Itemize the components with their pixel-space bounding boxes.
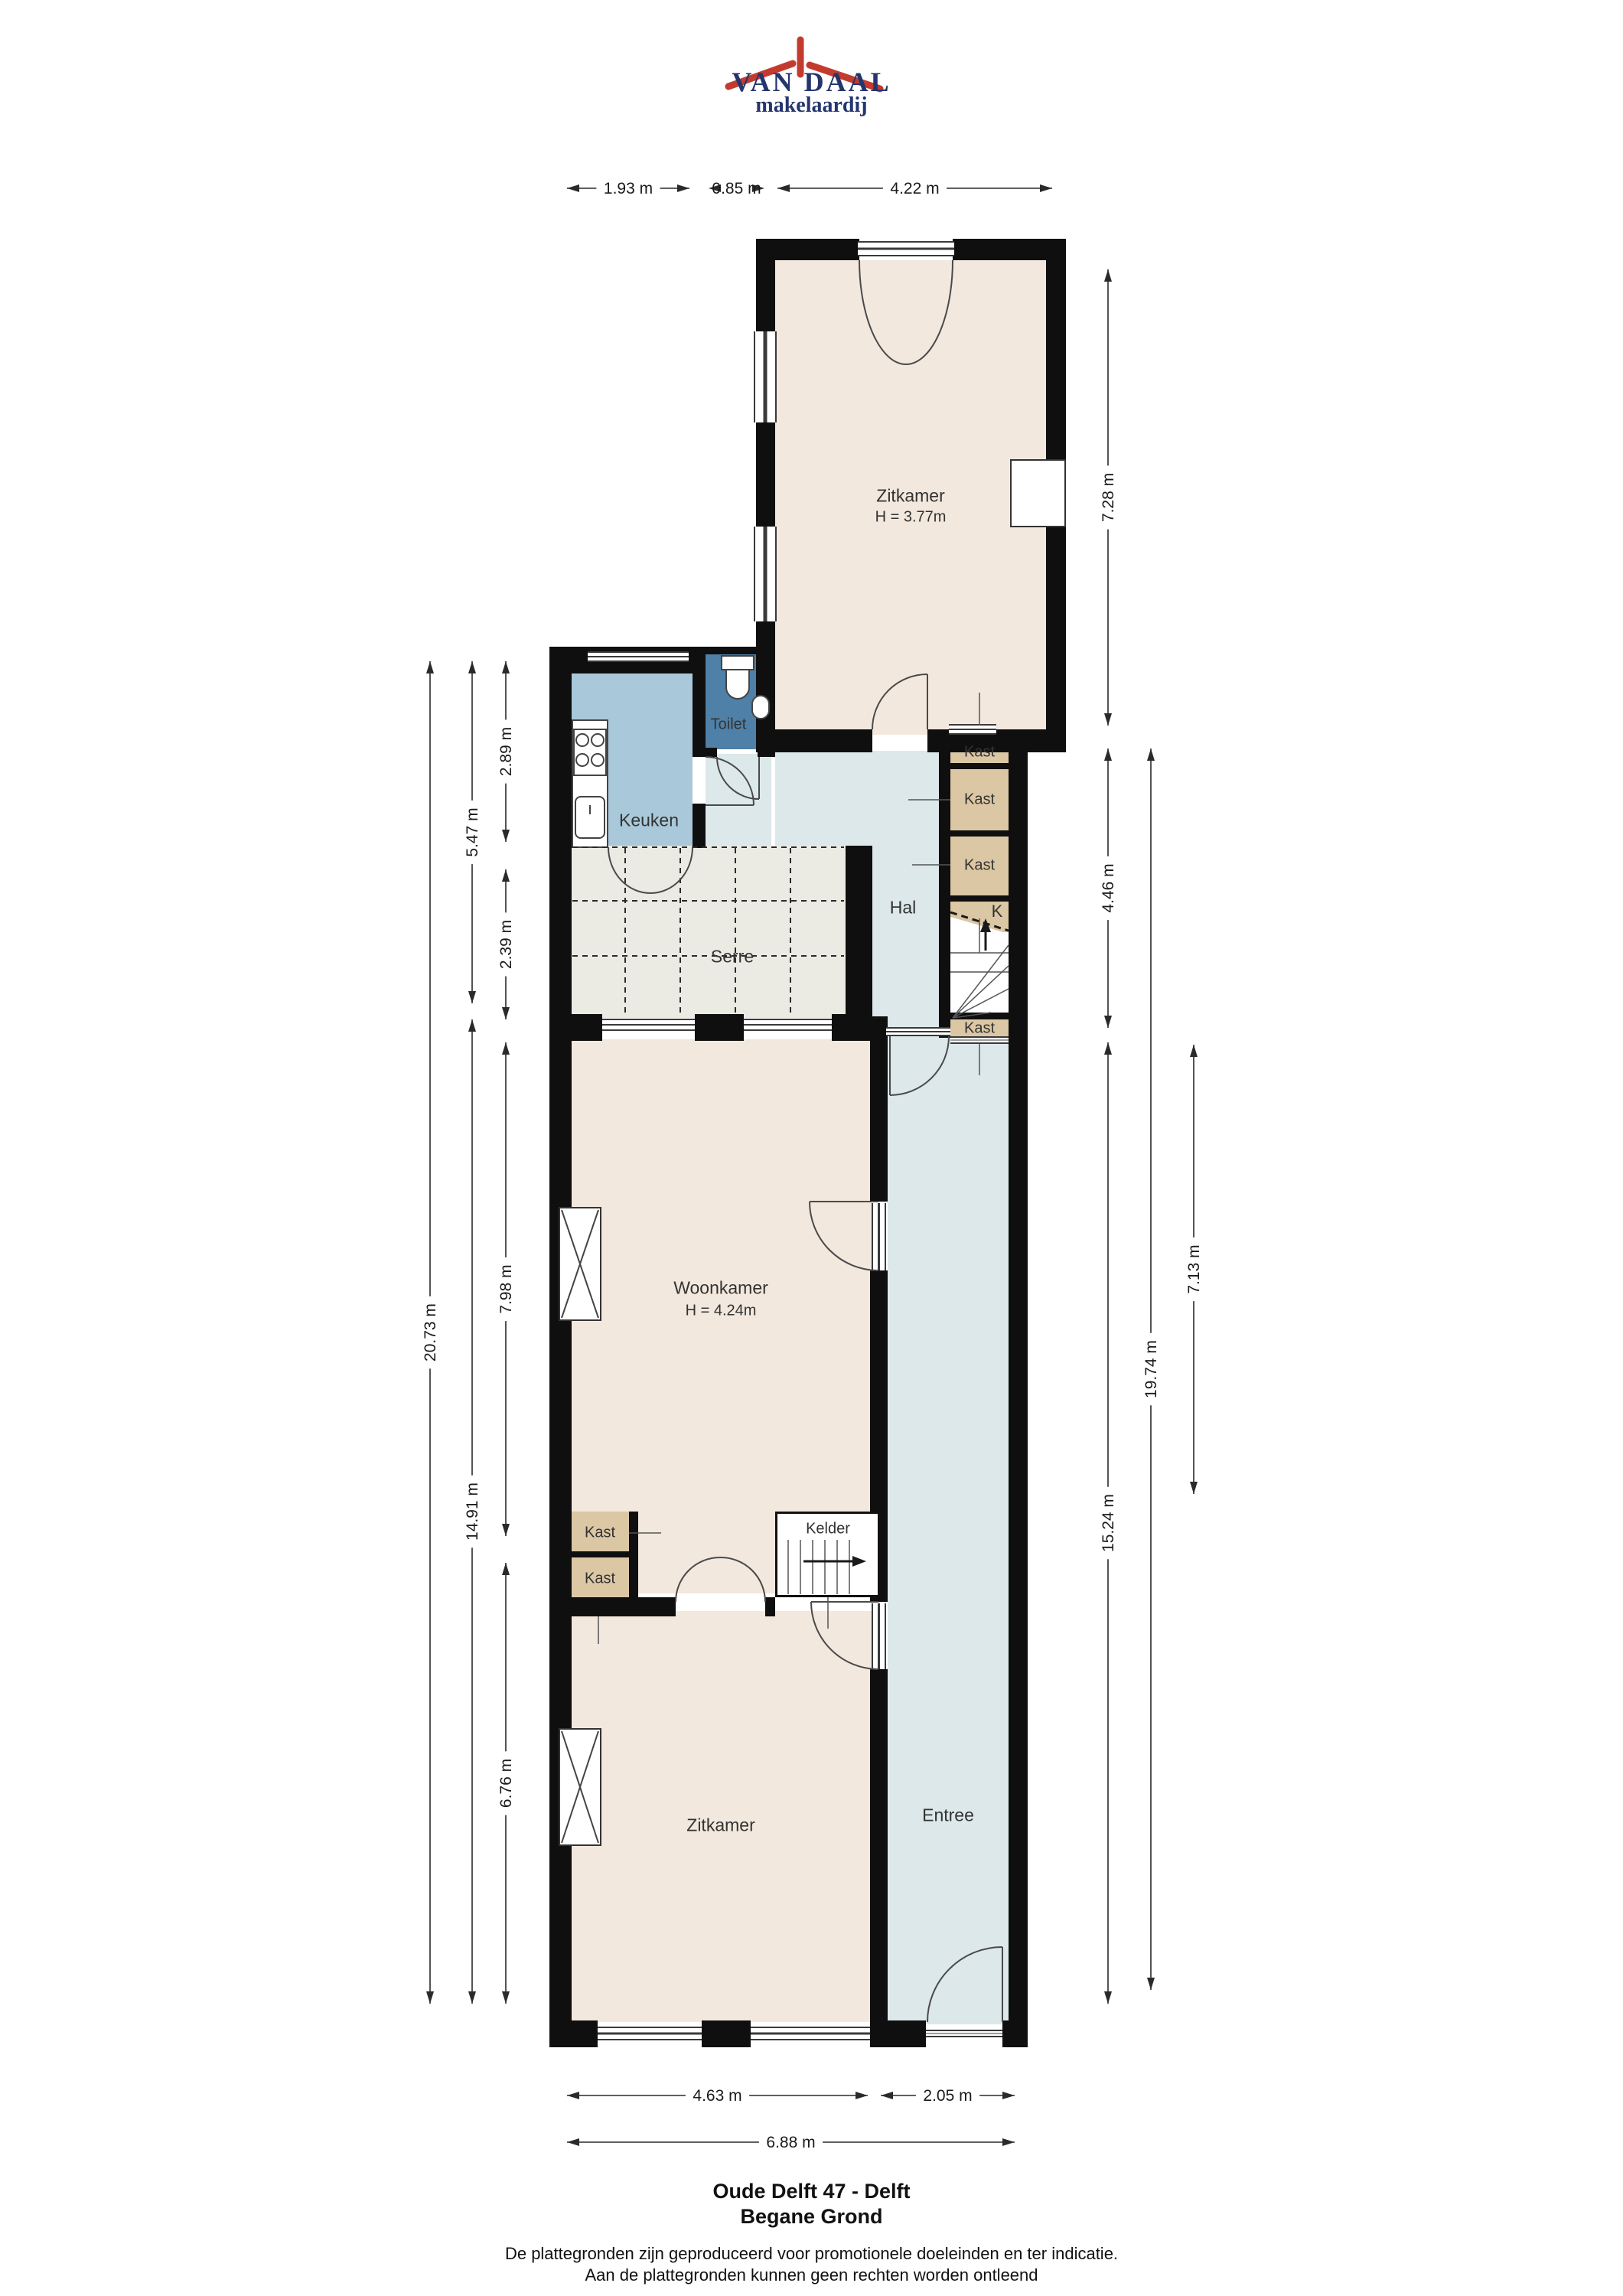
plan-disclaimer-1: De plattegronden zijn geproduceerd voor … — [0, 2244, 1623, 2264]
plan-address: Oude Delft 47 - Delft — [0, 2180, 1623, 2203]
room-label-kast-w1: Kast — [585, 1525, 615, 1542]
dimension-lines: 1.93 m0.85 m4.22 m4.63 m2.05 m6.88 m2.89… — [0, 0, 1623, 2296]
room-label-woonkamer: Woonkamer — [673, 1278, 768, 1299]
room-label-serre: Serre — [711, 947, 754, 967]
svg-text:6.88 m: 6.88 m — [766, 2134, 815, 2151]
room-label-hal: Hal — [890, 898, 917, 918]
plan-floor-name: Begane Grond — [0, 2205, 1623, 2229]
svg-text:5.47 m: 5.47 m — [464, 807, 481, 856]
svg-text:4.22 m: 4.22 m — [890, 180, 939, 197]
room-label-kast-3: Kast — [964, 857, 995, 875]
room-label-woonkamer-h: H = 4.24m — [686, 1303, 757, 1320]
svg-text:0.85 m: 0.85 m — [712, 180, 761, 197]
room-label-entree: Entree — [922, 1805, 974, 1826]
room-label-kast-2: Kast — [964, 791, 995, 809]
room-label-zitkamer-beneden: Zitkamer — [686, 1815, 754, 1836]
svg-text:20.73 m: 20.73 m — [422, 1303, 439, 1362]
svg-text:2.05 m: 2.05 m — [923, 2087, 972, 2105]
svg-text:7.28 m: 7.28 m — [1100, 473, 1117, 522]
svg-text:4.46 m: 4.46 m — [1100, 863, 1117, 912]
room-label-zitkamer-boven: Zitkamer — [876, 486, 944, 507]
room-label-zitkamer-boven-h: H = 3.77m — [875, 509, 947, 527]
svg-text:14.91 m: 14.91 m — [464, 1482, 481, 1541]
room-label-kast-trap: Kast — [964, 1020, 995, 1038]
svg-text:7.13 m: 7.13 m — [1185, 1244, 1203, 1293]
svg-text:19.74 m: 19.74 m — [1142, 1340, 1160, 1398]
floorplan-page: VAN DAAL makelaardij — [0, 0, 1623, 2296]
svg-text:7.98 m: 7.98 m — [497, 1264, 515, 1313]
room-label-kast-1: Kast — [964, 744, 995, 762]
room-label-toilet: Toilet — [711, 716, 747, 734]
room-label-k: K — [992, 902, 1003, 921]
svg-text:6.76 m: 6.76 m — [497, 1759, 515, 1808]
room-label-keuken: Keuken — [619, 810, 679, 831]
svg-text:2.89 m: 2.89 m — [497, 727, 515, 776]
svg-text:1.93 m: 1.93 m — [604, 180, 653, 197]
svg-text:15.24 m: 15.24 m — [1100, 1494, 1117, 1552]
plan-disclaimer-2: Aan de plattegronden kunnen geen rechten… — [0, 2265, 1623, 2285]
room-label-kelder: Kelder — [806, 1521, 850, 1538]
room-label-kast-w2: Kast — [585, 1570, 615, 1588]
svg-text:2.39 m: 2.39 m — [497, 920, 515, 969]
svg-text:4.63 m: 4.63 m — [693, 2087, 741, 2105]
